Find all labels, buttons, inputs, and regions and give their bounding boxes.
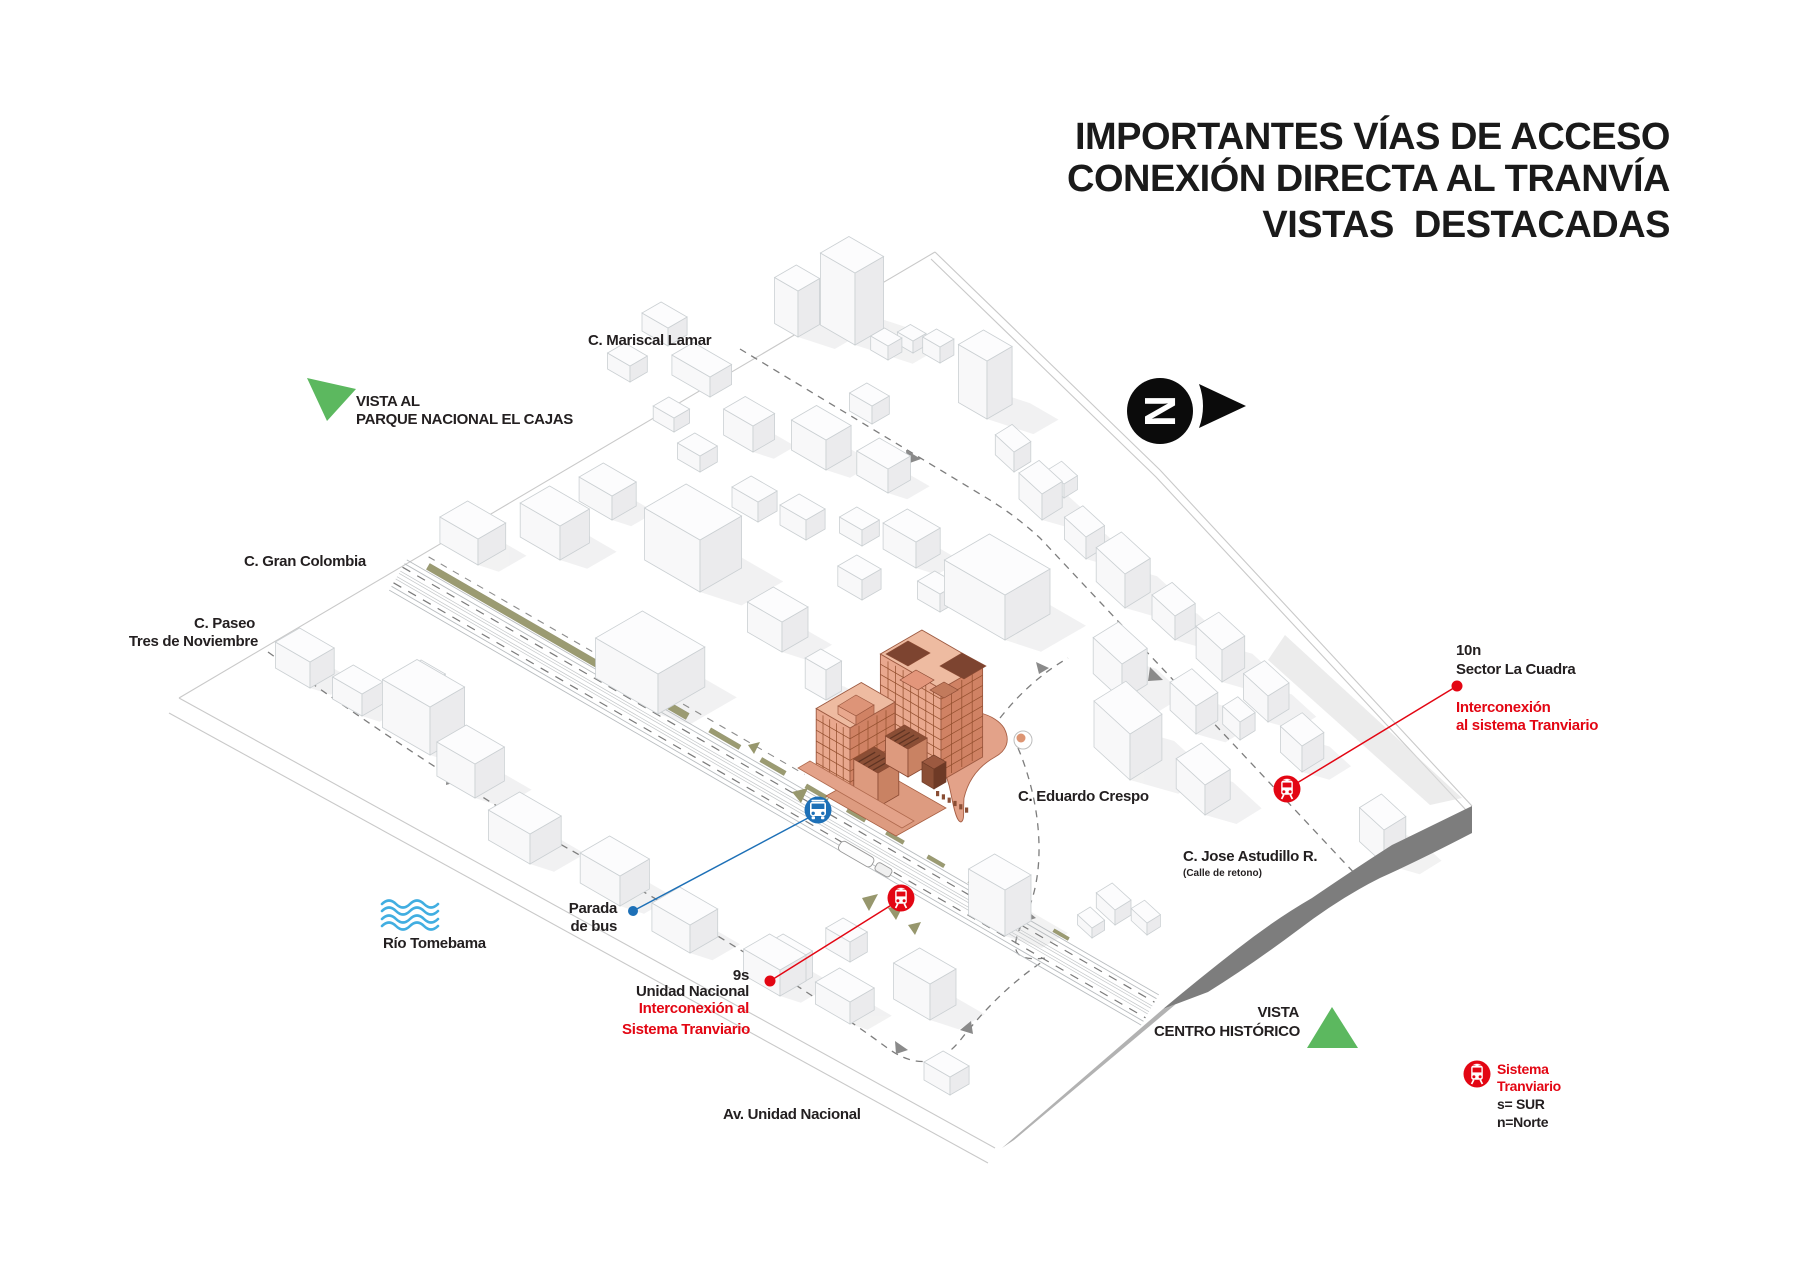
svg-text:VISTAS DESTACADAS: VISTAS DESTACADAS	[1262, 204, 1670, 246]
svg-text:(Calle de retono): (Calle de retono)	[1183, 868, 1262, 879]
svg-text:PARQUE NACIONAL EL CAJAS: PARQUE NACIONAL EL CAJAS	[356, 411, 573, 428]
svg-text:Tranviario: Tranviario	[1497, 1078, 1561, 1094]
svg-text:Río Tomebama: Río Tomebama	[383, 935, 487, 952]
svg-text:Sector La Cuadra: Sector La Cuadra	[1456, 661, 1576, 678]
svg-text:C. Jose Astudillo R.: C. Jose Astudillo R.	[1183, 848, 1317, 865]
svg-text:9s: 9s	[733, 967, 749, 984]
svg-text:Unidad Nacional: Unidad Nacional	[636, 983, 749, 1000]
svg-text:N: N	[1135, 395, 1184, 427]
svg-text:CONEXIÓN DIRECTA AL TRANVÍA: CONEXIÓN DIRECTA AL TRANVÍA	[1067, 156, 1670, 200]
svg-text:CENTRO HISTÓRICO: CENTRO HISTÓRICO	[1154, 1022, 1301, 1040]
svg-text:al sistema Tranviario: al sistema Tranviario	[1456, 717, 1598, 734]
svg-text:10n: 10n	[1456, 642, 1481, 659]
svg-text:n=Norte: n=Norte	[1497, 1114, 1549, 1130]
svg-text:Tres de Noviembre: Tres de Noviembre	[129, 633, 258, 650]
svg-text:Sistema: Sistema	[1497, 1061, 1549, 1077]
svg-text:IMPORTANTES VÍAS DE ACCESO: IMPORTANTES VÍAS DE ACCESO	[1075, 114, 1670, 158]
svg-text:VISTA: VISTA	[1257, 1004, 1299, 1021]
svg-text:Interconexión: Interconexión	[1456, 699, 1551, 716]
svg-text:Parada: Parada	[569, 900, 618, 917]
svg-text:Sistema Tranviario: Sistema Tranviario	[622, 1021, 750, 1038]
svg-text:C. Gran Colombia: C. Gran Colombia	[244, 553, 367, 570]
svg-text:Av. Unidad Nacional: Av. Unidad Nacional	[723, 1106, 861, 1123]
svg-text:s= SUR: s= SUR	[1497, 1096, 1545, 1112]
svg-text:C. Paseo: C. Paseo	[194, 615, 255, 632]
svg-text:Interconexión al: Interconexión al	[639, 1000, 749, 1017]
svg-text:de bus: de bus	[570, 918, 617, 935]
svg-text:C. Mariscal Lamar: C. Mariscal Lamar	[588, 332, 712, 349]
svg-text:C. Eduardo Crespo: C. Eduardo Crespo	[1018, 788, 1149, 805]
svg-text:VISTA AL: VISTA AL	[356, 393, 420, 410]
